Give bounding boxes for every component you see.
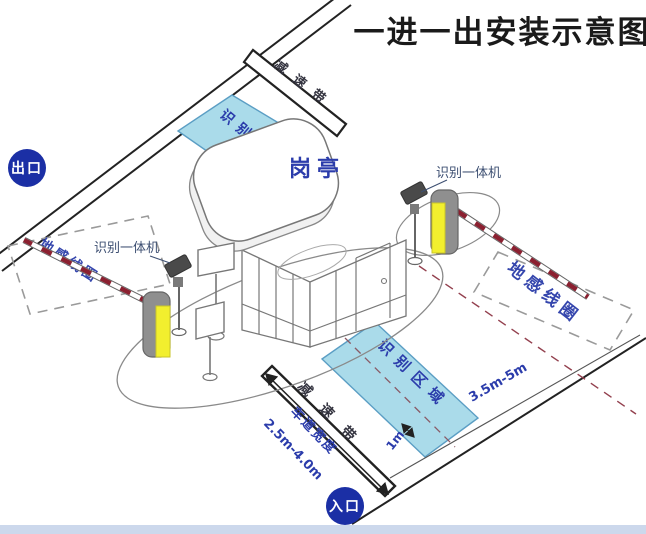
reader-exit-label: 识别一体机 — [94, 241, 159, 256]
barrier-post-yellow-panel — [156, 306, 170, 357]
sign-panel — [196, 302, 224, 339]
exit-badge-label: 出口 — [11, 160, 43, 177]
bottom-edge-strip — [0, 525, 646, 534]
diagram-canvas: 减速带 减速带 识别区域 识别区域 地感线圈 地感线圈 — [0, 0, 646, 534]
background — [0, 0, 646, 534]
page-title: 一进一出安装示意图 — [354, 15, 646, 51]
installation-diagram: 减速带 减速带 识别区域 识别区域 地感线圈 地感线圈 — [0, 0, 646, 534]
camera-bracket — [410, 204, 419, 214]
barrier-post-yellow-panel — [432, 203, 445, 253]
exit-badge: 出口 — [8, 149, 46, 187]
camera-bracket — [173, 277, 183, 287]
entrance-badge-label: 入口 — [329, 499, 361, 515]
entrance-badge: 入口 — [326, 487, 364, 525]
reader-entry-label: 识别一体机 — [436, 166, 501, 181]
booth-label: 岗亭 — [289, 156, 345, 182]
